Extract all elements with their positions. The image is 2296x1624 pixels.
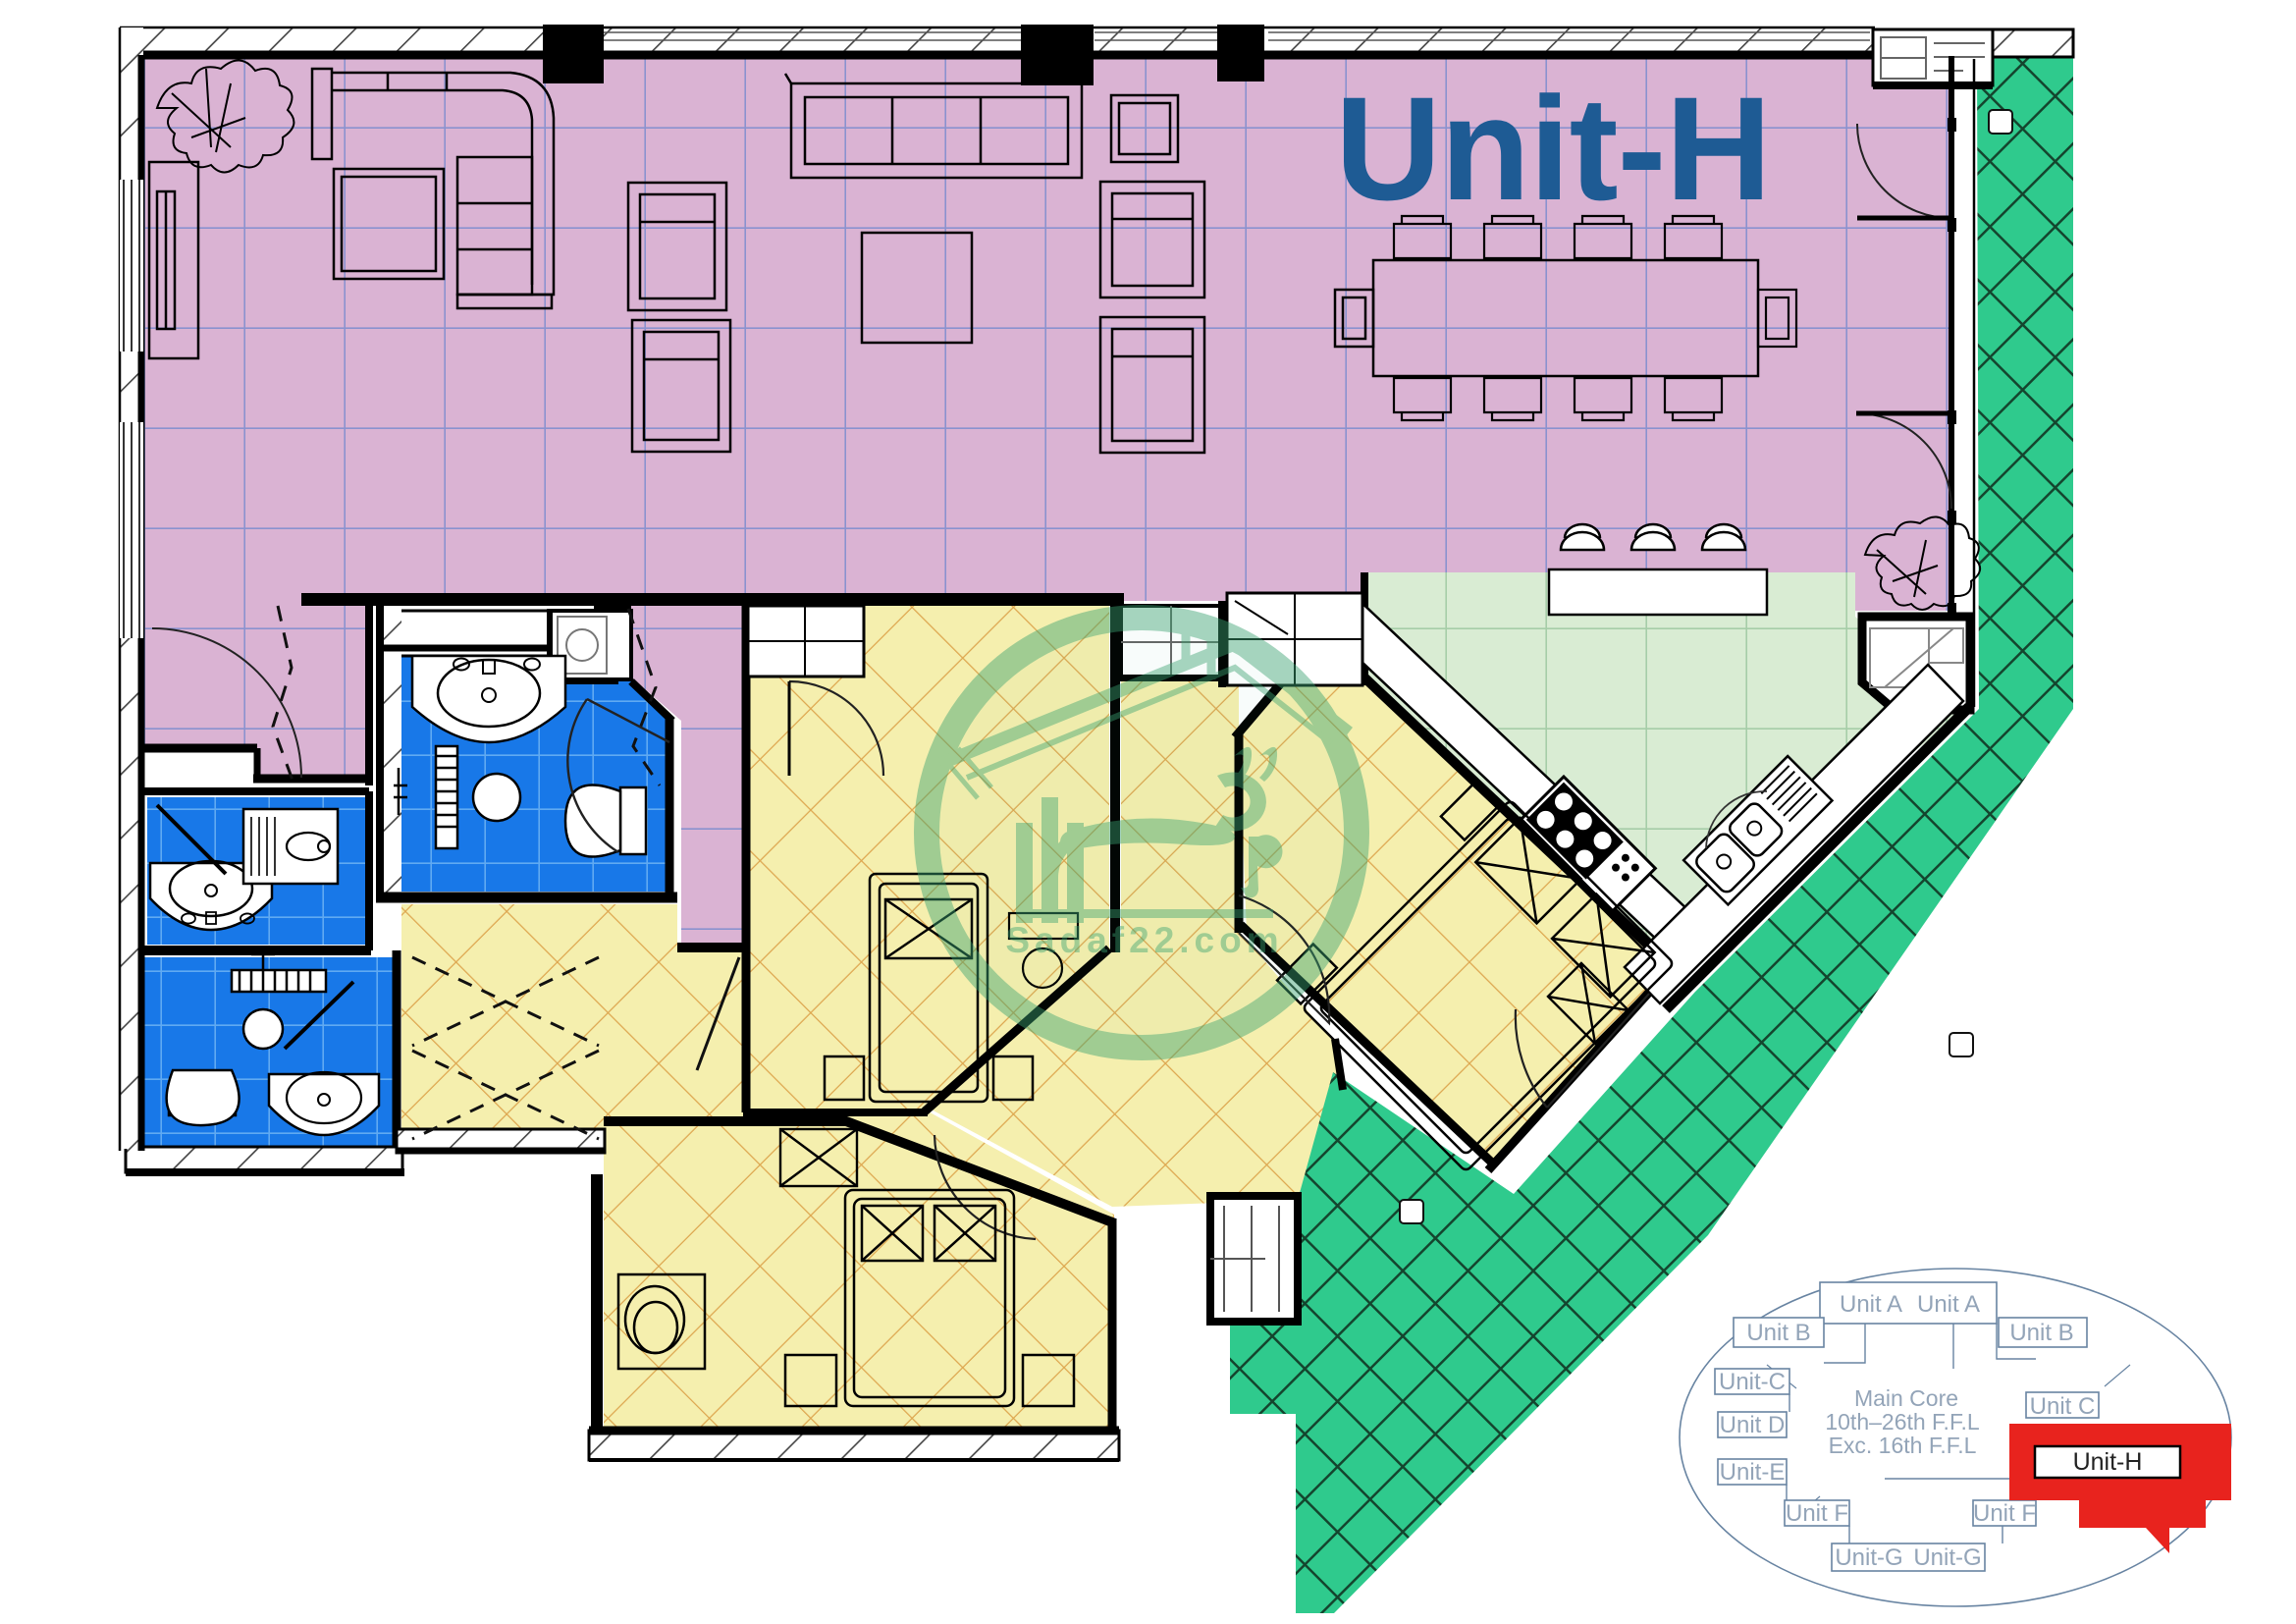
svg-text:Unit B: Unit B [2009, 1320, 2073, 1346]
svg-text:Unit-H: Unit-H [1335, 66, 1771, 231]
svg-text:Unit F: Unit F [1786, 1500, 1848, 1527]
svg-text:Unit-E: Unit-E [1720, 1459, 1786, 1486]
svg-text:Unit-C: Unit-C [1719, 1369, 1786, 1395]
svg-text:Sadaf22.com: Sadaf22.com [1005, 920, 1283, 960]
svg-text:10th–26th F.F.L: 10th–26th F.F.L [1825, 1409, 1979, 1435]
svg-text:Unit D: Unit D [1720, 1412, 1786, 1438]
svg-text:Unit A: Unit A [1917, 1291, 1980, 1318]
svg-text:Unit-H: Unit-H [2073, 1448, 2143, 1476]
svg-text:Exc. 16th F.F.L: Exc. 16th F.F.L [1829, 1433, 1977, 1458]
svg-text:Unit-G: Unit-G [1835, 1544, 1902, 1571]
svg-text:Unit A: Unit A [1840, 1291, 1902, 1318]
svg-text:Unit-G: Unit-G [1913, 1544, 1981, 1571]
svg-text:Unit B: Unit B [1746, 1320, 1810, 1346]
svg-text:Unit F: Unit F [1973, 1500, 2036, 1527]
svg-text:Main Core: Main Core [1854, 1385, 1958, 1411]
svg-text:Unit C: Unit C [2030, 1393, 2096, 1420]
